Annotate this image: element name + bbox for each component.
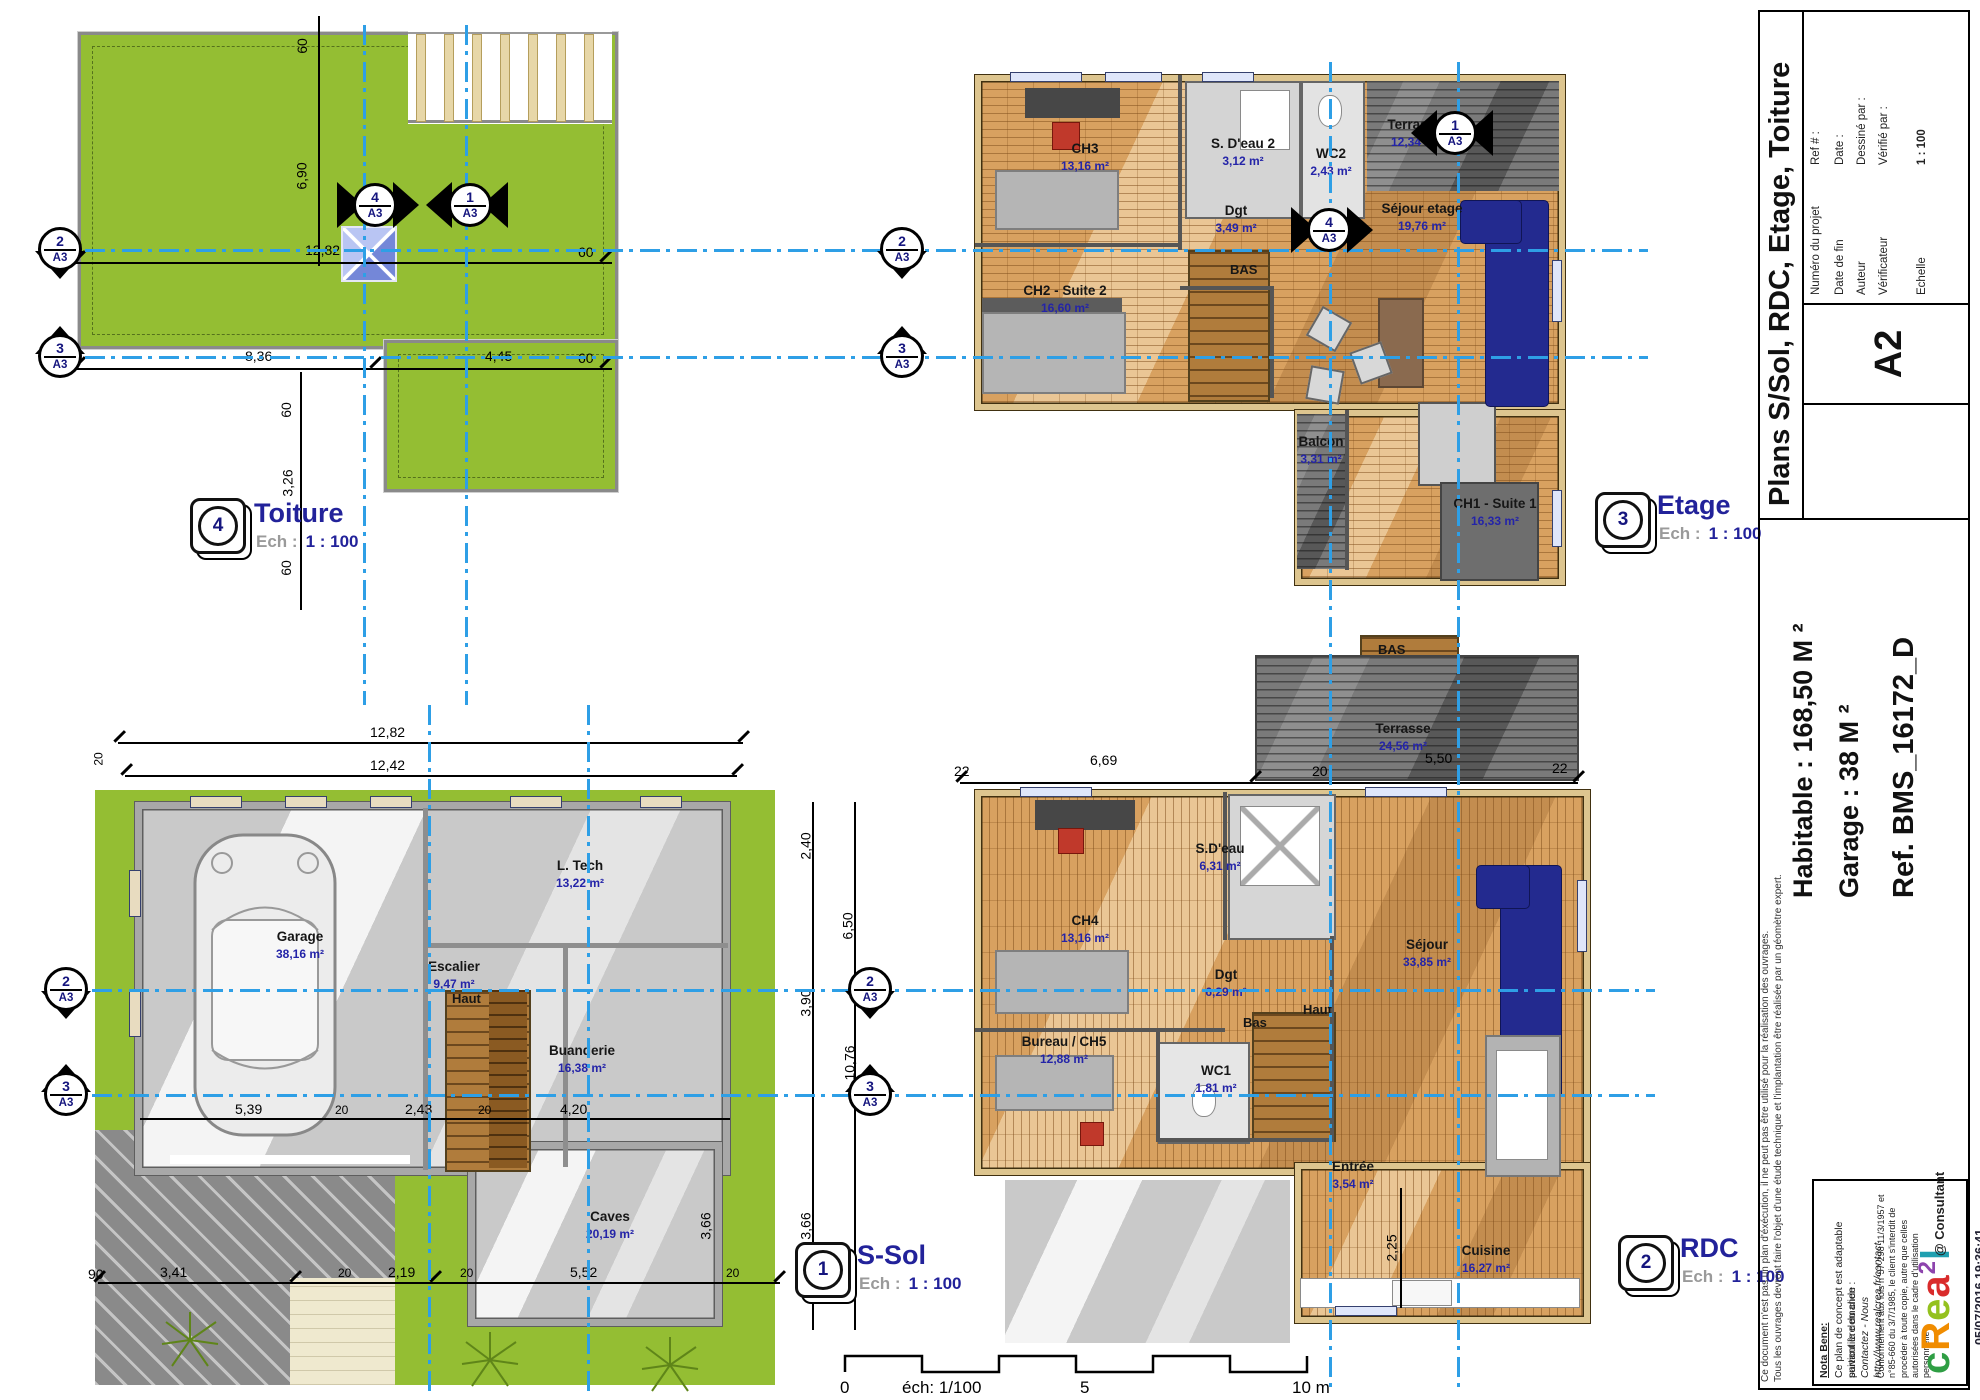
garage-area: Garage : 38 M ²: [1834, 704, 1865, 898]
red-chair: [1058, 828, 1084, 854]
window: [1577, 880, 1587, 952]
red-chair: [1052, 122, 1080, 150]
wardrobe: [1035, 800, 1135, 830]
plan-title-rdc: RDC: [1680, 1233, 1739, 1264]
nota-title: Nota Bene:: [1818, 1188, 1831, 1378]
shower: [1240, 806, 1320, 886]
dim-label: 2,40: [798, 832, 814, 859]
dim-line: [960, 782, 1578, 784]
wardrobe: [1025, 88, 1120, 118]
plan-title-ssol: S-Sol: [857, 1240, 926, 1271]
wall: [1223, 792, 1227, 940]
dim-label: 20: [726, 1266, 739, 1280]
window: [370, 796, 412, 808]
dim-label: 2,25: [1384, 1234, 1400, 1261]
plan-scale-ssol: Ech :1 : 100: [859, 1274, 962, 1294]
armchair: [1305, 365, 1344, 404]
plan-scale-etage: Ech :1 : 100: [1659, 524, 1762, 544]
wall: [1345, 410, 1349, 570]
dim-line: [48, 262, 612, 264]
dim-label: 4,20: [560, 1101, 587, 1117]
etage-bath-room: [1418, 402, 1496, 486]
section-marker-2: 2A3: [38, 227, 82, 271]
dim-label: 2,19: [388, 1264, 415, 1280]
plan-toiture: 60 12,82 60 60 8,36 4,45 60 60 6,90 60 3…: [30, 20, 880, 680]
etage-stairs: [1188, 250, 1270, 402]
plan-icon-ssol: 1: [795, 1242, 851, 1298]
wall: [563, 945, 568, 1167]
window: [1105, 72, 1162, 82]
wall: [1156, 1138, 1334, 1142]
dim-label: 60: [278, 560, 294, 576]
window: [1335, 1306, 1397, 1316]
pergola-slat: [556, 34, 566, 122]
dim-line: [125, 775, 737, 777]
rdc-outdoor-patio: [1005, 1180, 1290, 1343]
wall: [975, 1028, 1225, 1032]
sheet-title: Plans S/Sol, RDC, Etage, Toiture: [1764, 62, 1797, 506]
dim-label: 20: [1312, 763, 1328, 779]
divider: [1802, 403, 1970, 405]
dim-label: 5,52: [570, 1264, 597, 1280]
window: [285, 796, 327, 808]
dim-label: 3,66: [698, 1212, 714, 1239]
dim-label: 60: [578, 244, 594, 260]
red-chair: [1080, 1122, 1104, 1146]
window: [1552, 490, 1562, 547]
field-label: Numéro du projet: [1810, 206, 1822, 295]
pergola-rail-top: [408, 32, 612, 34]
dim-label: 60: [294, 38, 310, 54]
wall: [425, 943, 728, 948]
rdc-stairs: [1252, 1012, 1336, 1142]
divider: [1802, 303, 1970, 305]
window: [510, 796, 562, 808]
stair-label-bas: Bas: [1243, 1015, 1267, 1030]
project-reference: Ref. BMS_16172_D: [1888, 637, 1921, 898]
dim-label: 6,50: [840, 912, 856, 939]
field-value: Date :: [1834, 134, 1846, 165]
scale-field-label: Echelle: [1916, 257, 1928, 295]
dim-label: 20: [338, 1266, 351, 1280]
scale-zero: 0: [840, 1378, 849, 1398]
wall: [1156, 1028, 1160, 1140]
dim-label: 3,41: [160, 1264, 187, 1280]
dim-label: 12,82: [305, 242, 340, 258]
window: [129, 990, 141, 1037]
dim-label: 3,90: [798, 989, 814, 1016]
dim-label: 6,69: [1090, 752, 1117, 768]
dim-label: 20: [478, 1103, 491, 1117]
dim-line: [1400, 1188, 1402, 1308]
disclaimer-line: Tous les ouvrages devront faire l'objet …: [1773, 874, 1784, 1382]
dim-label: 90: [88, 1266, 104, 1282]
field-label: Vérificateur: [1878, 237, 1890, 295]
scale-bar: 0 éch: 1/100 5 10 m: [840, 1342, 1360, 1398]
stair-label-haut: Haut: [1303, 1002, 1332, 1017]
bed-ch3: [995, 170, 1119, 230]
field-value: Dessiné par :: [1856, 97, 1868, 165]
section-marker-4: 4A3: [353, 183, 397, 227]
window: [640, 796, 682, 808]
pergola-slat: [500, 34, 510, 122]
plan-icon-etage: 3: [1595, 492, 1651, 548]
section-marker-1: 1A3: [1433, 111, 1477, 155]
drawing-sheet: 60 12,82 60 60 8,36 4,45 60 60 6,90 60 3…: [0, 0, 1980, 1400]
scale-ten: 10 m: [1292, 1378, 1330, 1398]
section-marker-1: 1A3: [448, 183, 492, 227]
section-marker-2: 2A3: [848, 967, 892, 1011]
dim-label: 12,42: [370, 757, 405, 773]
dim-tick: [369, 356, 381, 368]
habitable-area: Habitable : 168,50 M ²: [1788, 623, 1819, 898]
wall: [975, 243, 1180, 247]
rdc-terrasse-deck: [1255, 655, 1579, 781]
dim-tick: [113, 730, 125, 742]
window: [1010, 72, 1082, 82]
pergola-slat: [584, 34, 594, 122]
window: [1552, 260, 1562, 322]
dim-label: 20: [335, 1103, 348, 1117]
scale-five: 5: [1080, 1378, 1089, 1398]
divider: [1802, 10, 1804, 520]
skylight: [341, 226, 397, 282]
window: [1020, 787, 1092, 797]
dim-label: 22: [1552, 760, 1568, 776]
pergola-slat: [444, 34, 454, 122]
field-value: Ref # :: [1810, 131, 1822, 165]
sofa-chaise: [1460, 200, 1522, 244]
wall: [1330, 936, 1334, 1140]
divider: [1758, 518, 1970, 520]
timestamp: 05/07/2016 19:36:41: [1973, 1175, 1980, 1345]
window: [1202, 72, 1254, 82]
field-label: Date de fin: [1834, 239, 1846, 295]
dim-tick: [731, 763, 743, 775]
stair-label-haut: Haut: [452, 991, 481, 1006]
field-value: Vérifié par :: [1878, 106, 1890, 165]
bed-ch1: [1440, 482, 1539, 581]
wall: [1180, 286, 1272, 290]
bed-headboard: [982, 298, 1122, 312]
nota-line: particulière du clien :: [1846, 1186, 1859, 1378]
dim-line: [118, 742, 743, 744]
window: [129, 870, 141, 917]
dim-label: 2,43: [405, 1101, 432, 1117]
wall: [1270, 286, 1274, 398]
wall: [1178, 75, 1182, 250]
toilet: [1192, 1085, 1216, 1117]
plan-scale-toiture: Ech :1 : 100: [256, 532, 359, 552]
bed-ch4: [995, 950, 1129, 1014]
plan-etage: CH313,16 m² S. D'eau 23,12 m² WC22,43 m²…: [940, 50, 1740, 650]
section-marker-4: 4A3: [1307, 208, 1351, 252]
plan-rdc: BAS Terrasse24,56 m² S.D'eau6,31 m² CH41…: [940, 630, 1740, 1400]
dim-label: 4,45: [485, 348, 512, 364]
section-marker-3: 3A3: [44, 1072, 88, 1116]
dim-label: 20: [460, 1266, 473, 1280]
stair-label-bas: BAS: [1230, 262, 1257, 277]
sofa-chaise: [1476, 865, 1530, 909]
title-block: Nota Bene: Ce plan de concept est adapta…: [1758, 10, 1974, 1390]
dim-label: 8,36: [245, 348, 272, 364]
section-marker-2: 2A3: [880, 227, 924, 271]
bed-ch2: [982, 312, 1126, 394]
pergola-rail-bottom: [408, 120, 612, 123]
roof-dashed-outline: [398, 354, 604, 478]
plan-ssol: Garage38,16 m² L. Tech13,22 m² Escalier9…: [40, 690, 975, 1400]
pergola-slat: [528, 34, 538, 122]
grass-tuft-icon: [640, 1335, 700, 1395]
section-marker-3: 3A3: [880, 334, 924, 378]
window: [1365, 787, 1447, 797]
nota-box: Nota Bene: Ce plan de concept est adapta…: [1812, 1179, 1968, 1386]
dim-line: [140, 1118, 730, 1120]
scale-label: éch: 1/100: [902, 1378, 981, 1398]
grass-tuft-icon: [160, 1310, 220, 1370]
sheet-format: A2: [1868, 316, 1911, 392]
grass-tuft-icon: [460, 1330, 520, 1390]
stair-label-bas-ext: BAS: [1378, 642, 1405, 657]
window: [190, 796, 242, 808]
dim-label: 60: [278, 402, 294, 418]
garage-door-opening: [170, 1155, 410, 1164]
dim-label: 3,26: [280, 469, 296, 496]
ssol-stairs-upper: [489, 990, 527, 1168]
section-marker-2: 2A3: [44, 967, 88, 1011]
section-marker-3: 3A3: [38, 334, 82, 378]
field-label: Auteur: [1856, 261, 1868, 295]
dining-table-top: [1496, 1050, 1548, 1160]
consultant-label: @ Consultant: [1932, 1172, 1947, 1256]
pergola-area: [408, 29, 612, 124]
desk-bureau: [995, 1055, 1114, 1111]
section-marker-3: 3A3: [848, 1072, 892, 1116]
scale-field-value: 1 : 100: [1916, 129, 1928, 165]
toilet: [1318, 95, 1342, 127]
plan-title-toiture: Toiture: [254, 498, 344, 529]
disclaimer-line: Ce document n'est pas un plan d'éxécutio…: [1760, 931, 1771, 1382]
car-icon: [175, 825, 355, 1145]
dim-line: [98, 1282, 780, 1284]
dim-label: 5,50: [1425, 750, 1452, 766]
dim-label: 3,66: [798, 1212, 814, 1239]
scale-bar-icon: [840, 1342, 1360, 1378]
pergola-slat: [472, 34, 482, 122]
crea-logo: cRea2l: [1914, 1248, 1959, 1374]
plan-title-etage: Etage: [1657, 490, 1731, 521]
dim-line: [48, 368, 612, 370]
etage-balcon-deck: [1297, 414, 1345, 569]
dim-line: [318, 16, 320, 266]
dim-label: 5,39: [235, 1101, 262, 1117]
dim-label: 6,90: [294, 162, 310, 189]
dim-line: [300, 372, 302, 610]
dim-tick: [120, 763, 132, 775]
dim-label: 12,82: [370, 724, 405, 740]
plan-icon-toiture: 4: [190, 498, 246, 554]
dim-tick: [773, 1270, 785, 1282]
dim-label: 20: [92, 752, 106, 765]
pergola-slat: [416, 34, 426, 122]
entry-path: [290, 1278, 395, 1385]
dim-tick: [737, 730, 749, 742]
dim-label: 60: [578, 350, 594, 366]
shower: [1240, 90, 1290, 150]
plan-icon-rdc: 2: [1618, 1235, 1674, 1291]
